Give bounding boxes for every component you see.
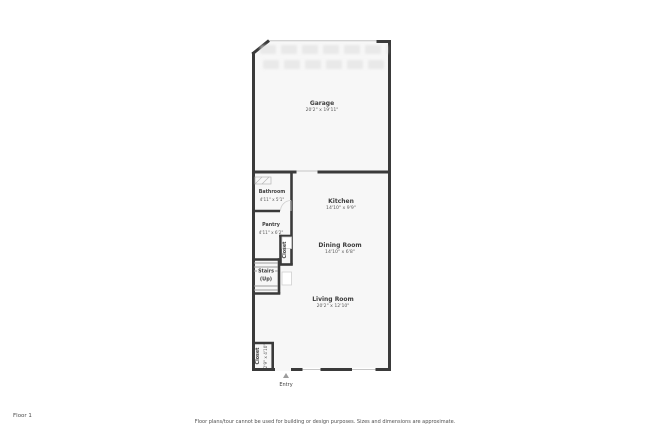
room-label-entry-closet: Closet 2'9" x 4'10" (256, 344, 268, 369)
room-dims: 14'10" x 9'9" (326, 206, 356, 212)
room-dims: 20'2" x 19'11" (306, 108, 339, 114)
room-name: Closet (283, 242, 289, 259)
floorplan-interior (253, 40, 391, 371)
watermark-line (263, 60, 384, 69)
room-label-garage: Garage 20'2" x 19'11" (306, 100, 339, 114)
disclaimer-text: Floor plans/tour cannot be used for buil… (0, 419, 650, 425)
room-dims: 4'11" x 5'1" (259, 197, 286, 202)
room-label-stairs: Stairs (Up) (257, 269, 275, 282)
room-name: Closet (256, 344, 262, 369)
entry-arrow-icon (283, 373, 289, 378)
room-name: Kitchen (326, 198, 356, 206)
room-name: Pantry (259, 223, 284, 229)
room-label-kitchen: Kitchen 14'10" x 9'9" (326, 198, 356, 212)
room-dims: 2'9" x 4'10" (263, 344, 268, 369)
room-name: Dining Room (318, 242, 361, 250)
room-label-closet: Closet (283, 242, 289, 259)
door-stairs-hall (282, 272, 292, 285)
room-name: Living Room (312, 296, 354, 304)
room-name: Bathroom (259, 190, 286, 196)
room-sub: (Up) (257, 276, 275, 283)
entry-label: Entry (279, 382, 292, 388)
room-name: Stairs (257, 269, 275, 275)
room-label-pantry: Pantry 4'11" x 6'2" (259, 223, 284, 235)
room-dims: 14'10" x 6'8" (318, 250, 361, 256)
floorplan-page: Garage 20'2" x 19'11" Bathroom 4'11" x 5… (0, 0, 650, 433)
room-label-bathroom: Bathroom 4'11" x 5'1" (259, 190, 286, 202)
room-dims: 4'11" x 6'2" (259, 230, 284, 235)
room-dims: 20'2" x 12'10" (312, 304, 354, 310)
watermark-line (260, 45, 388, 54)
room-label-dining: Dining Room 14'10" x 6'8" (318, 242, 361, 256)
room-label-living: Living Room 20'2" x 12'10" (312, 296, 354, 310)
room-name: Garage (306, 100, 339, 108)
